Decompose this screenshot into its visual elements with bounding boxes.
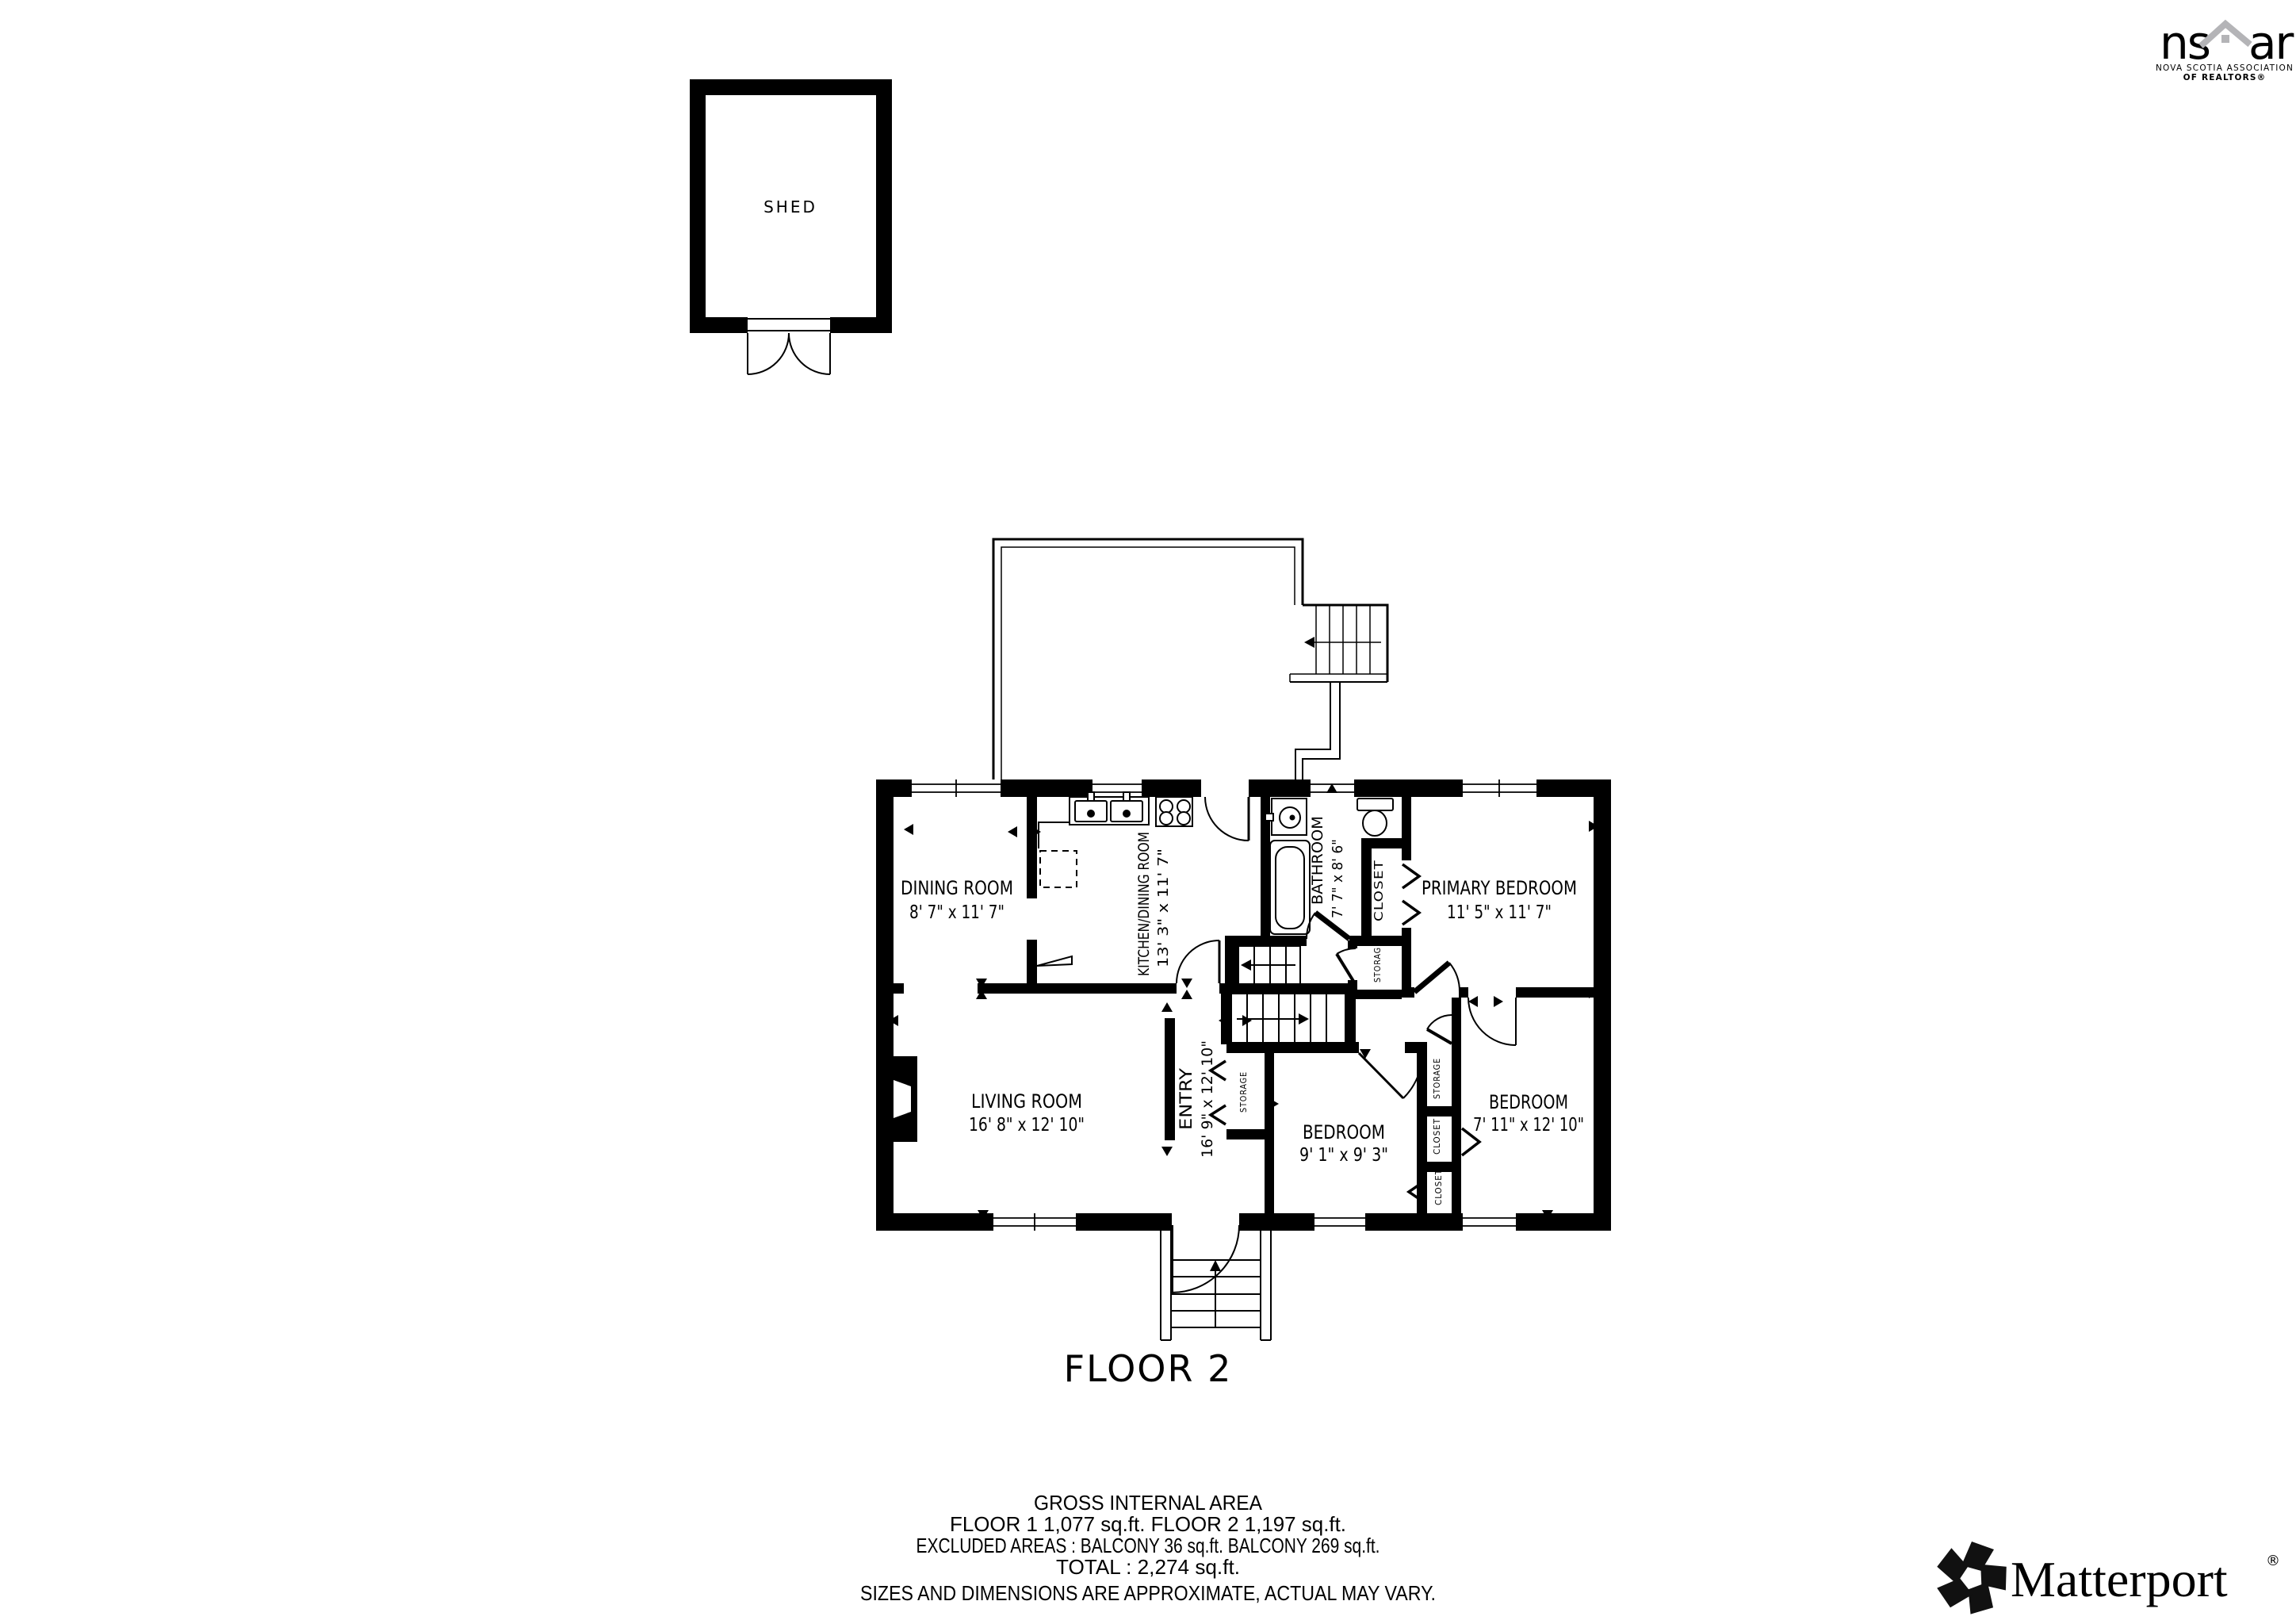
closet-bathroom-label: CLOSET (1372, 860, 1386, 921)
appliance-dashed-icon (1040, 851, 1077, 887)
matterport-logo: Matterport ® (1932, 1542, 2280, 1621)
window-bedroom-small-icon (1314, 1213, 1365, 1231)
summary-title: GROSS INTERNAL AREA (1034, 1491, 1263, 1515)
nsar-tagline-2: OF REALTORS® (2183, 73, 2267, 82)
balcony-deck-outline (993, 539, 1387, 779)
summary-floors: FLOOR 1 1,077 sq.ft. FLOOR 2 1,197 sq.ft… (950, 1512, 1346, 1536)
bathtub-icon (1270, 841, 1310, 934)
storage-hall-label: STORAGE (1372, 941, 1383, 982)
column-storage-door-icon (1427, 1015, 1452, 1044)
window-primary-bedroom-icon (1463, 779, 1536, 797)
primary-bedroom-door-icon (1414, 963, 1460, 992)
wall-opening-marker-icon (904, 824, 913, 835)
bathroom-label: BATHROOM (1309, 816, 1326, 905)
wall-opening-marker-icon (1494, 996, 1503, 1007)
bathroom-dims: 7' 7" x 8' 6" (1330, 839, 1346, 918)
nsar-word-right: ar (2248, 16, 2294, 70)
house-outer-walls (876, 779, 1611, 1231)
kitchen-dims: 13' 3" x 11' 7" (1155, 848, 1172, 967)
toilet-icon (1357, 799, 1393, 836)
entry-dims: 16' 9" x 12' 10" (1199, 1040, 1216, 1158)
bedroom-small-door-icon (1359, 1053, 1422, 1098)
stairs-up-arrow-icon (1210, 1260, 1221, 1271)
wall-opening-marker-icon (1161, 1002, 1173, 1012)
kitchen-label: KITCHEN/DINING ROOM (1135, 832, 1153, 976)
bedroom-right-label: BEDROOM (1489, 1091, 1568, 1113)
deck-stairs-down-arrow-icon (1304, 637, 1314, 648)
room-labels: DINING ROOM 8' 7" x 11' 7" KITCHEN/DININ… (901, 816, 1584, 1205)
summary-excluded: EXCLUDED AREAS : BALCONY 36 sq.ft. BALCO… (916, 1534, 1380, 1557)
summary-total: TOTAL : 2,274 sq.ft. (1056, 1555, 1240, 1579)
shed-label: SHED (763, 197, 817, 216)
nsar-house-dot-icon (2221, 35, 2229, 43)
fireplace-notch (894, 1080, 911, 1118)
wall-opening-marker-icon (1181, 990, 1192, 999)
interior-stairs-icon (1231, 946, 1345, 1044)
storage-entry-label: STORAGE (1238, 1071, 1249, 1113)
primary-bedroom-label: PRIMARY BEDROOM (1422, 877, 1577, 899)
dining-room-dims: 8' 7" x 11' 7" (909, 902, 1004, 923)
front-door-icon (1172, 1225, 1239, 1293)
matterport-registered-mark: ® (2266, 1553, 2280, 1569)
pinwheel-blade-icon (1934, 1545, 1972, 1585)
nsar-logo: ns ar NOVA SCOTIA ASSOCIATION OF REALTOR… (2156, 16, 2294, 82)
front-entry-stairs-icon (1161, 1231, 1271, 1340)
summary-disclaimer: SIZES AND DIMENSIONS ARE APPROXIMATE, AC… (860, 1581, 1436, 1605)
bedroom-small-label: BEDROOM (1303, 1121, 1385, 1143)
house-interior-walls (894, 797, 1594, 1213)
shed-outline: SHED (690, 79, 892, 374)
dining-door-icon (1037, 956, 1072, 966)
window-bedroom-right-icon (1463, 1213, 1516, 1231)
shed-double-door-icon (748, 317, 830, 374)
storage-column-label: STORAGE (1432, 1058, 1442, 1099)
bedroom-small-dims: 9' 1" x 9' 3" (1299, 1145, 1388, 1166)
wall-opening-marker-icon (1008, 826, 1017, 837)
wall-opening-marker-icon (1468, 996, 1478, 1007)
nsar-tagline-1: NOVA SCOTIA ASSOCIATION (2156, 63, 2294, 73)
living-room-label: LIVING ROOM (971, 1090, 1082, 1113)
opening-markers (889, 783, 1598, 1220)
hall-storage-door-icon (1337, 948, 1356, 985)
wall-opening-marker-icon (1181, 979, 1192, 988)
deck-stairs-icon (1313, 605, 1381, 674)
matterport-wordmark: Matterport (2011, 1551, 2228, 1607)
primary-bedroom-dims: 11' 5" x 11' 7" (1447, 902, 1552, 923)
deck-door-icon (1205, 797, 1249, 841)
area-summary: GROSS INTERNAL AREA FLOOR 1 1,077 sq.ft.… (860, 1491, 1436, 1605)
matterport-pinwheel-icon (1932, 1542, 2013, 1621)
closet-bottom-label: CLOSET (1433, 1169, 1444, 1205)
bedroom-right-dims: 7' 11" x 12' 10" (1473, 1115, 1584, 1136)
floor-plan-canvas: SHED (0, 0, 2296, 1624)
window-living-icon (993, 1213, 1076, 1231)
closet-middle-label: CLOSET (1432, 1118, 1442, 1155)
kitchen-door-icon (1177, 940, 1219, 983)
window-kitchen-icon (1093, 779, 1142, 797)
entry-label: ENTRY (1177, 1068, 1196, 1130)
dining-room-label: DINING ROOM (901, 877, 1013, 899)
floor-title: FLOOR 2 (1064, 1347, 1233, 1390)
living-room-dims: 16' 8" x 12' 10" (969, 1115, 1085, 1136)
window-dining-icon (912, 779, 1001, 797)
wall-opening-marker-icon (1161, 1147, 1173, 1156)
